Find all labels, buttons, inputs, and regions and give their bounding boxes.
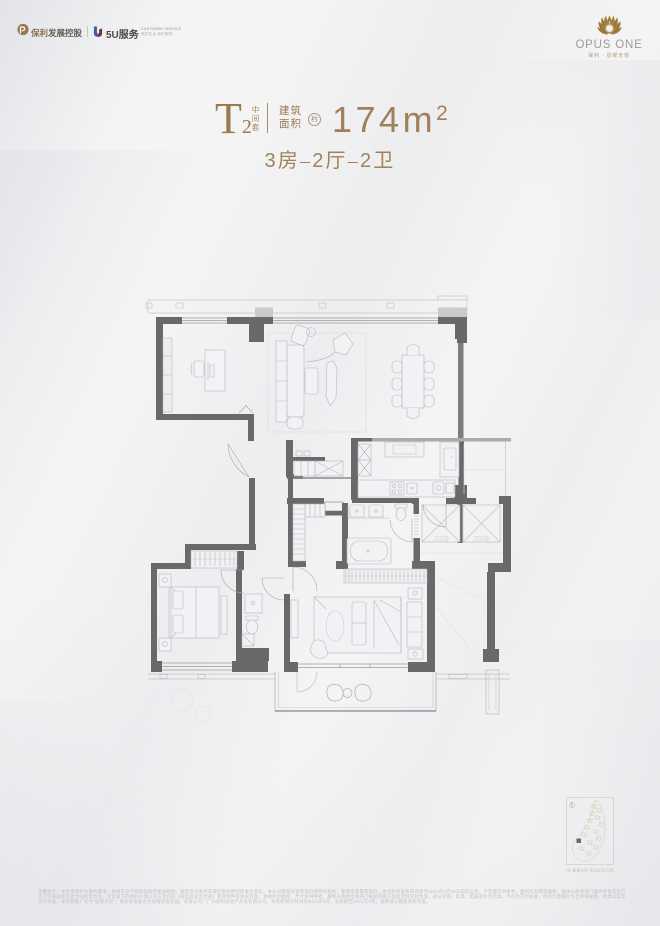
svg-text:保利·星曜天悦 项目区位示意图: 保利·星曜天悦 项目区位示意图: [566, 868, 614, 873]
